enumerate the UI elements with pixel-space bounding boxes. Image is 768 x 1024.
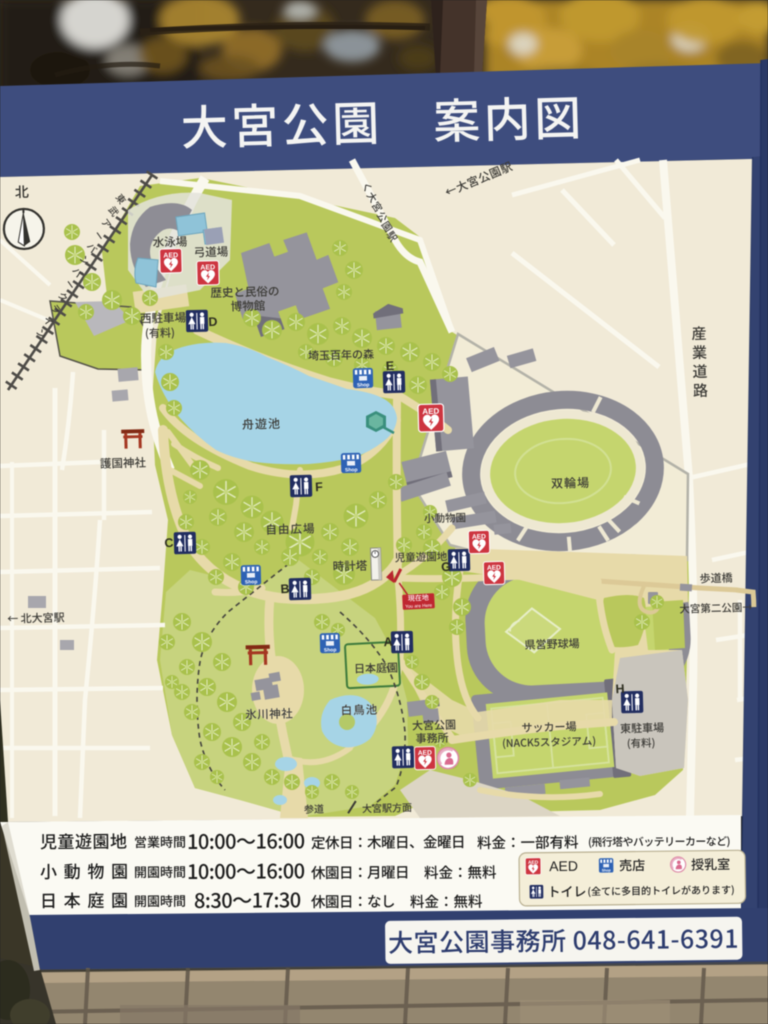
svg-text:H: H (615, 682, 625, 696)
svg-text:B: B (280, 582, 290, 596)
svg-text:D: D (208, 315, 218, 329)
svg-text:A: A (383, 635, 393, 649)
svg-text:F: F (315, 480, 324, 494)
svg-text:G: G (441, 560, 451, 574)
svg-text:AED: AED (549, 858, 578, 874)
svg-text:C: C (164, 536, 174, 550)
svg-text:E: E (385, 359, 394, 373)
